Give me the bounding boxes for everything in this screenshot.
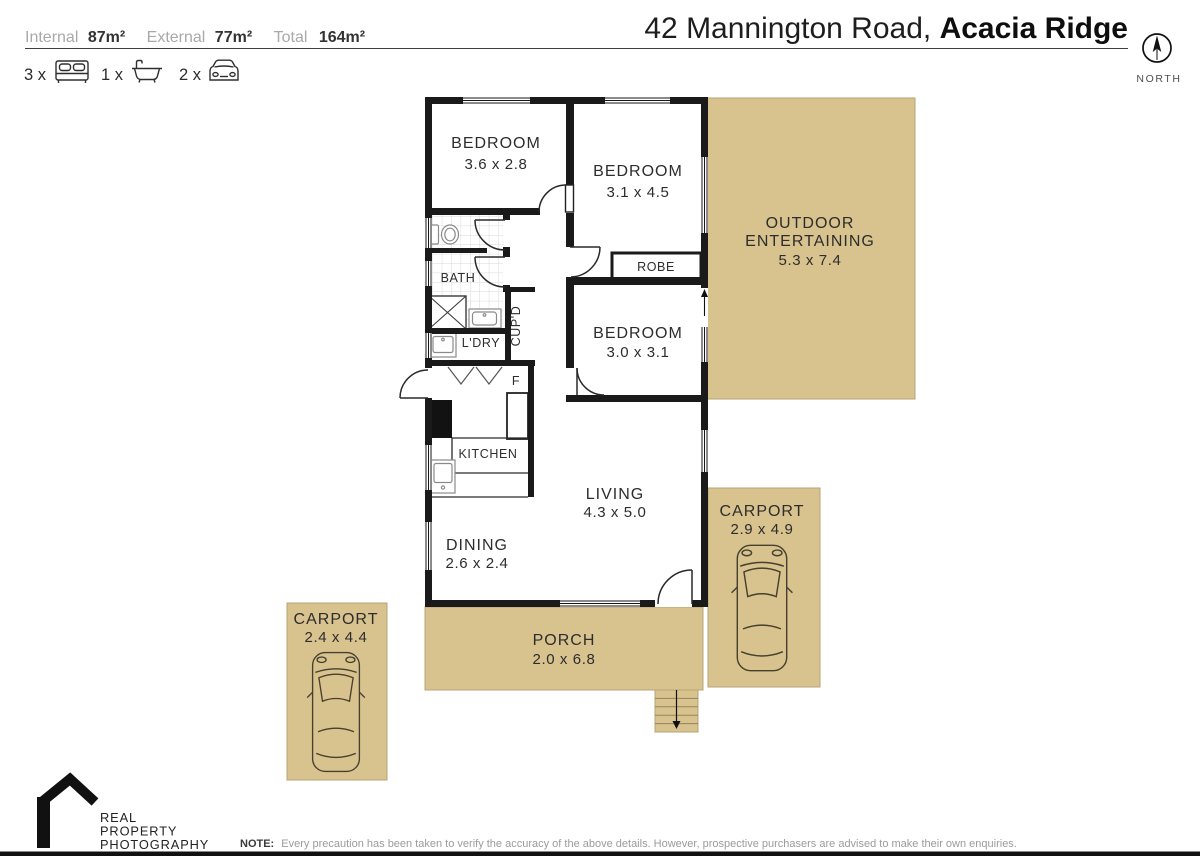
label-kitchen: KITCHEN — [458, 447, 517, 461]
bottom-bar — [0, 852, 1200, 856]
disclaimer-note: NOTE: Every precaution has been taken to… — [240, 838, 1017, 850]
title-suburb: Acacia Ridge — [940, 12, 1128, 45]
floorplan-page: Internal 87m² External 77m² Total 164m² … — [0, 0, 1200, 856]
shower-icon — [429, 296, 466, 329]
toilet-icon — [431, 225, 459, 244]
laundry-tub-icon — [430, 333, 456, 357]
window — [605, 97, 670, 104]
feature-icons-row: 3 x 1 x 2 x — [24, 60, 238, 84]
window — [425, 218, 432, 248]
bath-count: 1 x — [101, 66, 124, 84]
window — [701, 430, 708, 472]
fridge-space — [507, 393, 528, 439]
room-label-living: LIVING — [586, 486, 644, 503]
car-count: 2 x — [179, 66, 202, 84]
kitchen-sink-icon — [431, 460, 455, 493]
window — [425, 261, 432, 286]
page-title: 42 Mannington Road, Acacia Ridge — [644, 12, 1128, 45]
title-street: 42 Mannington Road, — [644, 12, 939, 45]
window — [425, 445, 432, 490]
room-dims-outdoor: 5.3 x 7.4 — [779, 252, 842, 269]
window — [560, 600, 640, 607]
external-label: External — [147, 29, 206, 46]
total-value: 164m² — [319, 29, 365, 46]
window — [701, 157, 708, 233]
internal-label: Internal — [25, 29, 78, 46]
entry-door — [400, 368, 432, 398]
room-dims-living: 4.3 x 5.0 — [584, 504, 647, 521]
label-robe: ROBE — [637, 260, 675, 274]
room-label-outdoor-1: OUTDOOR — [766, 215, 855, 232]
room-dims-dining: 2.6 x 2.4 — [446, 555, 509, 572]
room-label-outdoor-2: ENTERTAINING — [745, 233, 875, 250]
note-label: NOTE: — [240, 838, 274, 850]
room-label-bedroom3: BEDROOM — [593, 325, 683, 342]
svg-text:Internal 87m² Exte: Internal 87m² External 77m² Total 164m² — [25, 29, 365, 46]
car-icon — [210, 60, 238, 80]
label-fridge: F — [512, 374, 520, 388]
internal-value: 87m² — [88, 29, 125, 46]
window — [425, 522, 432, 570]
room-dims-porch: 2.0 x 6.8 — [533, 651, 596, 668]
room-label-bedroom1: BEDROOM — [451, 135, 541, 152]
bed-icon — [56, 61, 88, 83]
room-label-carport-right: CARPORT — [720, 503, 805, 520]
photography-logo: REAL PROPERTY PHOTOGRAPHY — [37, 779, 209, 852]
label-cupboard: CUP'D — [509, 306, 523, 347]
label-laundry: L'DRY — [462, 336, 501, 350]
window — [425, 333, 432, 358]
logo-line-3: PHOTOGRAPHY — [100, 837, 209, 852]
external-value: 77m² — [215, 29, 252, 46]
total-label: Total — [274, 29, 308, 46]
window — [463, 97, 530, 104]
logo-glyph-bar — [37, 797, 50, 848]
label-bath: BATH — [441, 271, 476, 285]
room-dims-bedroom3: 3.0 x 3.1 — [607, 344, 670, 361]
room-label-porch: PORCH — [533, 632, 596, 649]
vanity-basin-icon — [469, 309, 501, 328]
bed-count: 3 x — [24, 66, 47, 84]
compass-label: NORTH — [1136, 73, 1181, 85]
room-dims-carport-right: 2.9 x 4.9 — [731, 521, 794, 538]
logo-glyph-roof-icon — [43, 779, 95, 802]
floorplan-svg: Internal 87m² External 77m² Total 164m² … — [0, 0, 1200, 856]
room-dims-carport-left: 2.4 x 4.4 — [305, 629, 368, 646]
sliding-door — [701, 288, 708, 327]
north-compass: NORTH — [1136, 34, 1181, 85]
room-dims-bedroom1: 3.6 x 2.8 — [465, 156, 528, 173]
room-label-dining: DINING — [446, 537, 508, 554]
note-text: Every precaution has been taken to verif… — [281, 838, 1017, 850]
window — [701, 327, 708, 362]
room-dims-bedroom2: 3.1 x 4.5 — [607, 184, 670, 201]
porch-steps — [655, 690, 698, 732]
room-label-bedroom2: BEDROOM — [593, 163, 683, 180]
room-label-carport-left: CARPORT — [294, 611, 379, 628]
svg-text:42 Mannington Road, Aca: 42 Mannington Road, Acacia Ridge — [644, 12, 1128, 45]
bath-icon — [132, 61, 162, 83]
